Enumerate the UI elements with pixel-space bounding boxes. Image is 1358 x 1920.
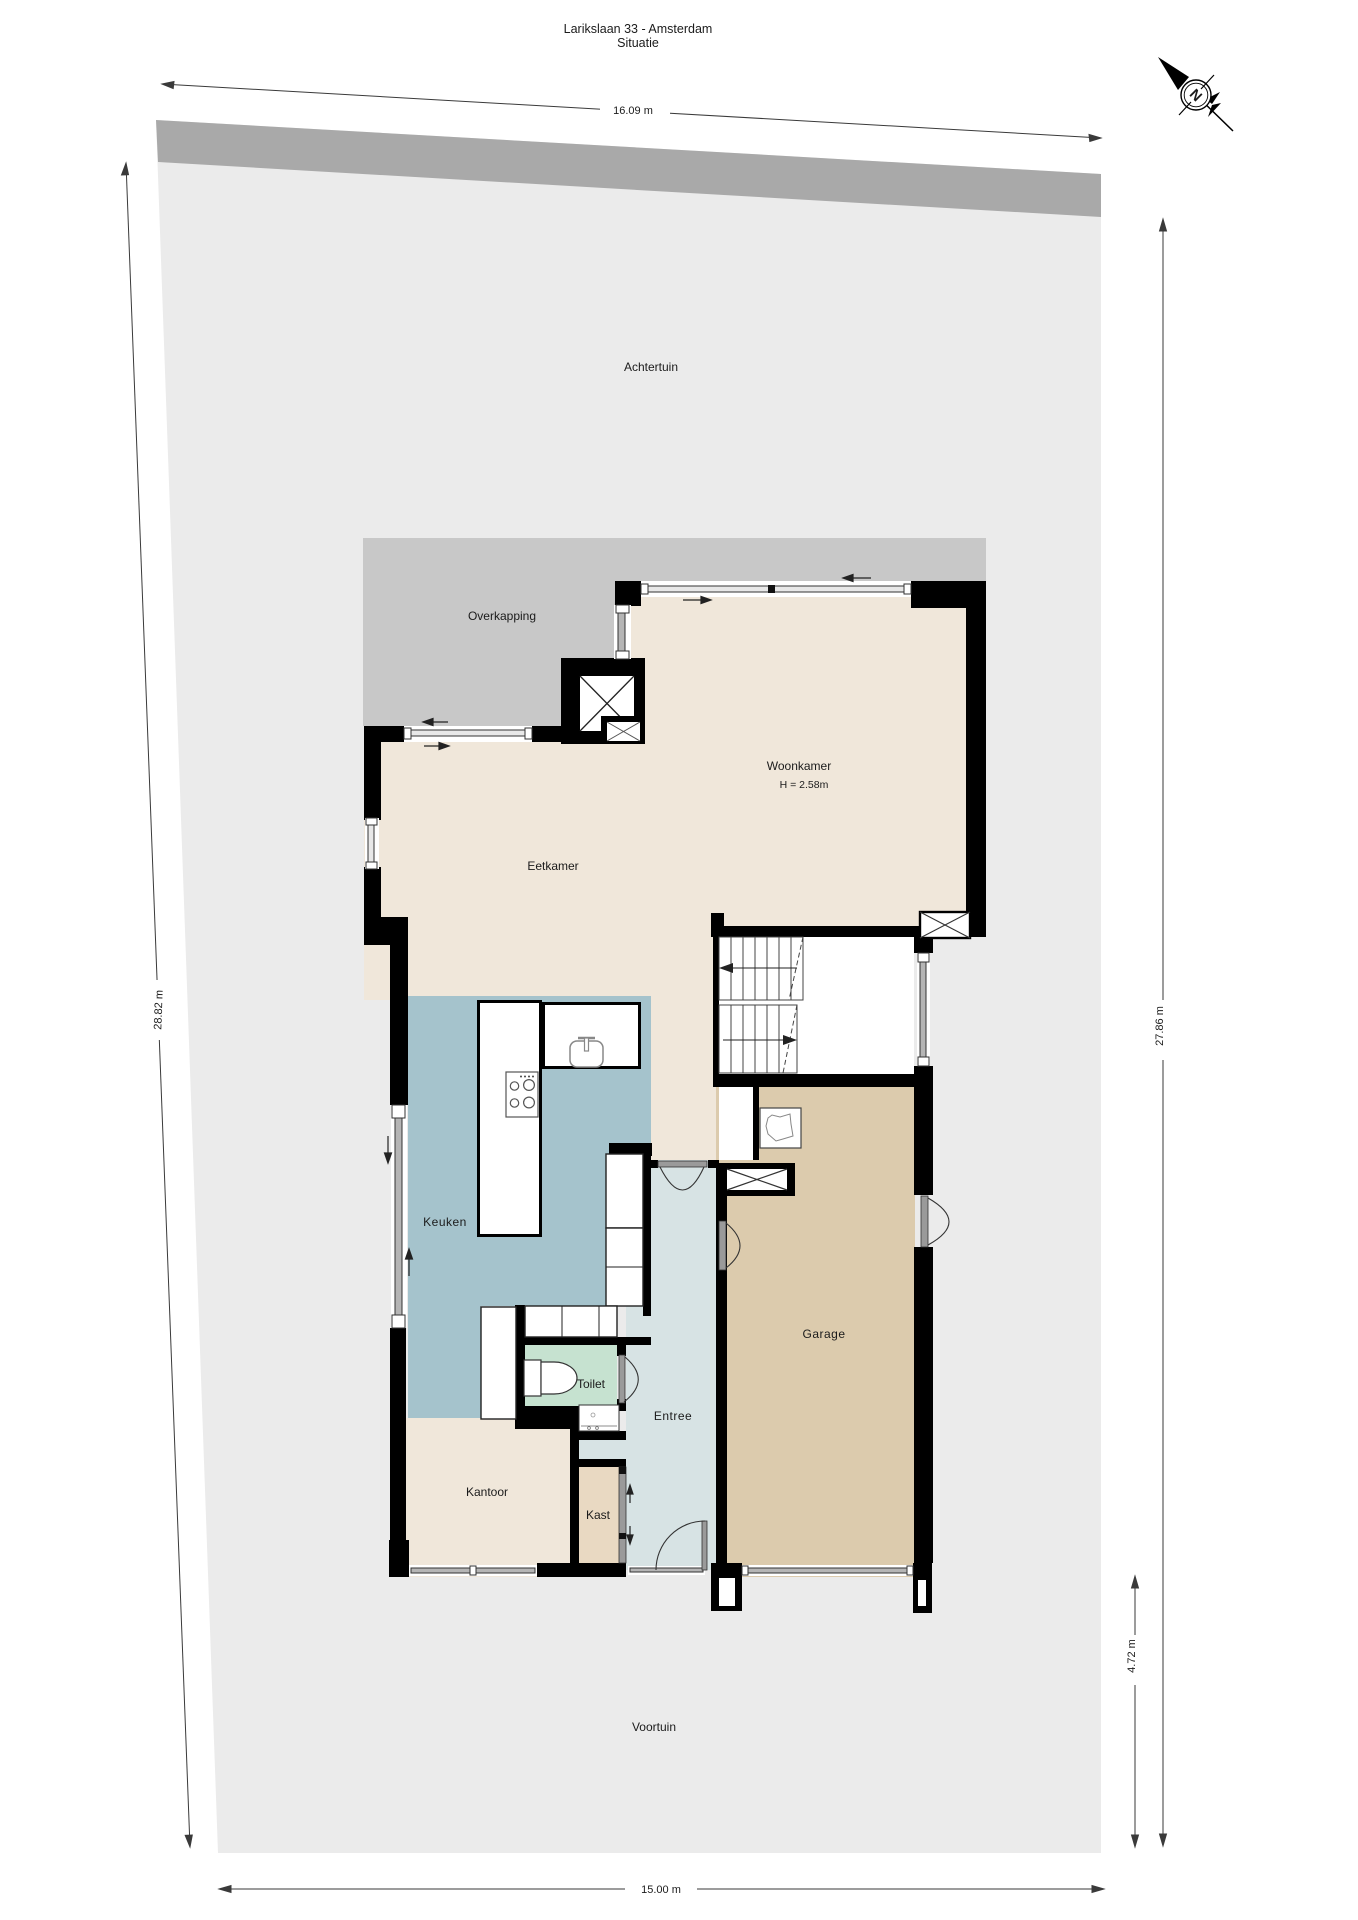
svg-text:Entree: Entree xyxy=(654,1409,692,1423)
svg-text:Kantoor: Kantoor xyxy=(466,1485,508,1499)
svg-text:27.86 m: 27.86 m xyxy=(1154,1006,1166,1046)
svg-text:Eetkamer: Eetkamer xyxy=(527,859,578,873)
svg-text:Larikslaan 33 - Amsterdam: Larikslaan 33 - Amsterdam xyxy=(564,22,713,36)
svg-text:15.00 m: 15.00 m xyxy=(641,1884,681,1896)
svg-text:Woonkamer: Woonkamer xyxy=(767,759,831,773)
svg-text:28.82 m: 28.82 m xyxy=(152,990,165,1030)
svg-text:Toilet: Toilet xyxy=(577,1377,606,1391)
svg-text:Keuken: Keuken xyxy=(423,1215,467,1229)
svg-text:16.09 m: 16.09 m xyxy=(613,105,653,117)
svg-text:Garage: Garage xyxy=(802,1327,845,1341)
svg-text:Voortuin: Voortuin xyxy=(632,1720,676,1734)
svg-text:Situatie: Situatie xyxy=(617,36,659,50)
svg-text:H = 2.58m: H = 2.58m xyxy=(780,779,829,791)
svg-text:Kast: Kast xyxy=(586,1508,611,1522)
svg-text:Overkapping: Overkapping xyxy=(468,609,536,623)
svg-text:Achtertuin: Achtertuin xyxy=(624,360,678,374)
svg-text:4.72 m: 4.72 m xyxy=(1126,1639,1138,1673)
